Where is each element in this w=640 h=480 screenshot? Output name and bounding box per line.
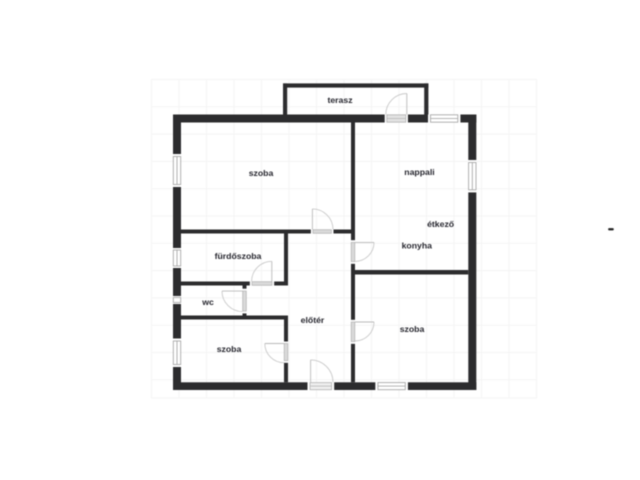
svg-text:terasz: terasz	[327, 95, 353, 105]
svg-text:nappali: nappali	[404, 167, 434, 177]
svg-text:konyha: konyha	[402, 241, 433, 251]
svg-text:fürdőszoba: fürdőszoba	[215, 251, 262, 261]
svg-text:szoba: szoba	[400, 324, 425, 334]
svg-text:wc: wc	[201, 297, 214, 307]
svg-text:szoba: szoba	[249, 168, 274, 178]
svg-text:előtér: előtér	[301, 315, 325, 325]
svg-text:szoba: szoba	[217, 344, 242, 354]
svg-text:étkező: étkező	[427, 219, 454, 229]
